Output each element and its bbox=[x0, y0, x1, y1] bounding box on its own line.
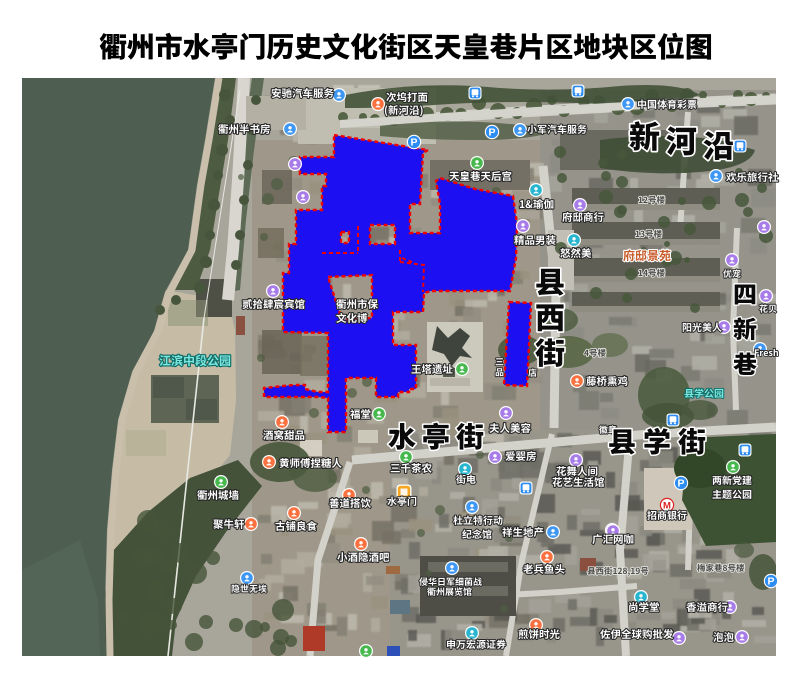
svg-text:P: P bbox=[677, 478, 684, 490]
svg-text:P: P bbox=[410, 137, 417, 149]
svg-text:M: M bbox=[663, 500, 671, 511]
svg-text:P: P bbox=[767, 576, 774, 588]
svg-text:P: P bbox=[488, 127, 495, 139]
